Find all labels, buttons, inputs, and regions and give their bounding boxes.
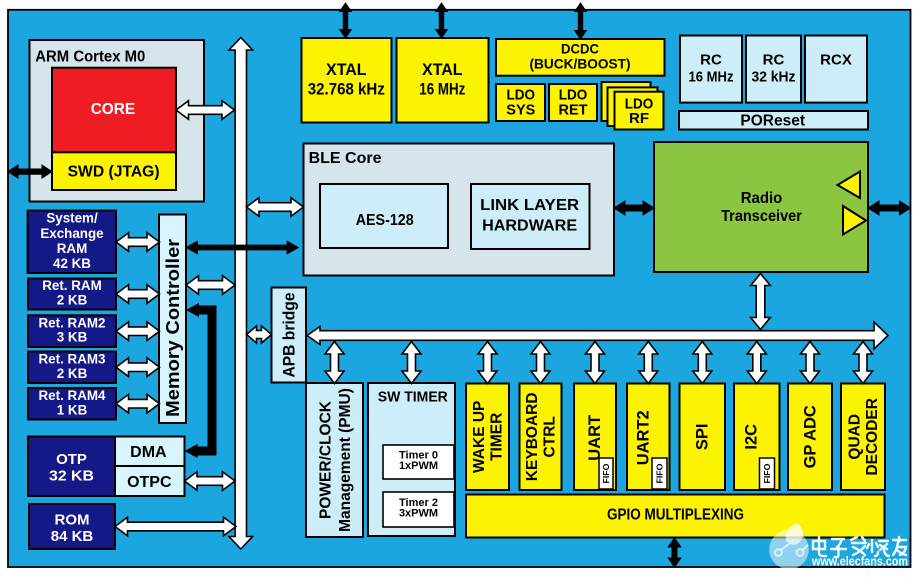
- svg-text:RF: RF: [629, 110, 649, 127]
- svg-text:POReset: POReset: [740, 113, 805, 130]
- svg-text:OTP: OTP: [56, 451, 87, 468]
- svg-text:RAM: RAM: [57, 241, 88, 256]
- svg-text:3xPWM: 3xPWM: [399, 508, 438, 520]
- svg-text:CTRL: CTRL: [541, 416, 558, 457]
- svg-text:SPI: SPI: [694, 423, 712, 450]
- svg-text:DMA: DMA: [130, 444, 167, 461]
- svg-text:WAKE UP: WAKE UP: [471, 401, 488, 473]
- svg-text:FIFO: FIFO: [762, 463, 772, 483]
- svg-text:AES-128: AES-128: [356, 212, 414, 229]
- svg-text:POWER/CLOCK: POWER/CLOCK: [317, 400, 334, 519]
- svg-text:FIFO: FIFO: [655, 463, 665, 483]
- svg-text:HARDWARE: HARDWARE: [482, 218, 577, 235]
- svg-text:3 KB: 3 KB: [57, 330, 88, 345]
- svg-text:System/: System/: [46, 211, 98, 226]
- svg-text:Management (PMU): Management (PMU): [337, 388, 354, 532]
- svg-text:42 KB: 42 KB: [53, 256, 91, 271]
- svg-text:2 KB: 2 KB: [57, 293, 88, 308]
- svg-text:BLE Core: BLE Core: [309, 150, 382, 167]
- svg-text:RC: RC: [763, 52, 785, 69]
- svg-text:Ret. RAM2: Ret. RAM2: [39, 315, 106, 330]
- svg-text:CORE: CORE: [91, 101, 136, 118]
- svg-text:Radio: Radio: [741, 190, 783, 207]
- svg-text:ROM: ROM: [55, 511, 90, 528]
- svg-text:16 MHz: 16 MHz: [419, 80, 465, 98]
- svg-text:RC: RC: [700, 52, 722, 69]
- svg-text:OTPC: OTPC: [127, 474, 172, 491]
- svg-text:32.768 kHz: 32.768 kHz: [308, 80, 385, 98]
- svg-text:16 MHz: 16 MHz: [689, 68, 734, 85]
- svg-text:UART2: UART2: [634, 410, 652, 465]
- svg-text:SYS: SYS: [506, 101, 535, 118]
- svg-text:ARM Cortex M0: ARM Cortex M0: [35, 49, 145, 66]
- svg-text:Transceiver: Transceiver: [721, 208, 802, 225]
- svg-text:QUAD: QUAD: [846, 414, 863, 460]
- svg-text:LINK LAYER: LINK LAYER: [480, 197, 579, 214]
- svg-text:32 kHz: 32 kHz: [752, 68, 796, 85]
- svg-text:FIFO: FIFO: [601, 463, 611, 483]
- svg-text:Memory Controller: Memory Controller: [162, 239, 183, 417]
- svg-text:TIMER: TIMER: [488, 413, 505, 461]
- svg-text:GPIO MULTIPLEXING: GPIO MULTIPLEXING: [607, 507, 744, 524]
- svg-text:XTAL: XTAL: [326, 61, 367, 79]
- svg-text:DECODER: DECODER: [864, 398, 881, 476]
- svg-text:XTAL: XTAL: [422, 61, 463, 79]
- svg-text:84 KB: 84 KB: [51, 528, 94, 545]
- svg-text:(BUCK/BOOST): (BUCK/BOOST): [530, 55, 631, 71]
- svg-text:I2C: I2C: [742, 424, 760, 450]
- svg-text:KEYBOARD: KEYBOARD: [524, 392, 541, 481]
- svg-text:DCDC: DCDC: [561, 41, 599, 57]
- svg-text:UART: UART: [586, 415, 604, 461]
- svg-text:APB bridge: APB bridge: [280, 293, 298, 378]
- svg-text:RCX: RCX: [820, 52, 852, 69]
- svg-text:RET: RET: [559, 101, 588, 118]
- svg-text:2 KB: 2 KB: [57, 366, 88, 381]
- svg-text:GP ADC: GP ADC: [801, 405, 819, 468]
- svg-text:SW TIMER: SW TIMER: [378, 390, 449, 406]
- svg-text:Ret. RAM4: Ret. RAM4: [39, 388, 107, 403]
- svg-text:SWD (JTAG): SWD (JTAG): [68, 164, 160, 181]
- svg-text:Ret. RAM: Ret. RAM: [42, 278, 102, 293]
- svg-text:Ret. RAM3: Ret. RAM3: [39, 351, 106, 366]
- svg-text:1xPWM: 1xPWM: [399, 460, 438, 472]
- svg-text:1 KB: 1 KB: [57, 402, 88, 417]
- svg-text:32 KB: 32 KB: [49, 468, 94, 485]
- svg-text:www.elecfans.com: www.elecfans.com: [811, 554, 908, 569]
- svg-text:Exchange: Exchange: [40, 226, 103, 241]
